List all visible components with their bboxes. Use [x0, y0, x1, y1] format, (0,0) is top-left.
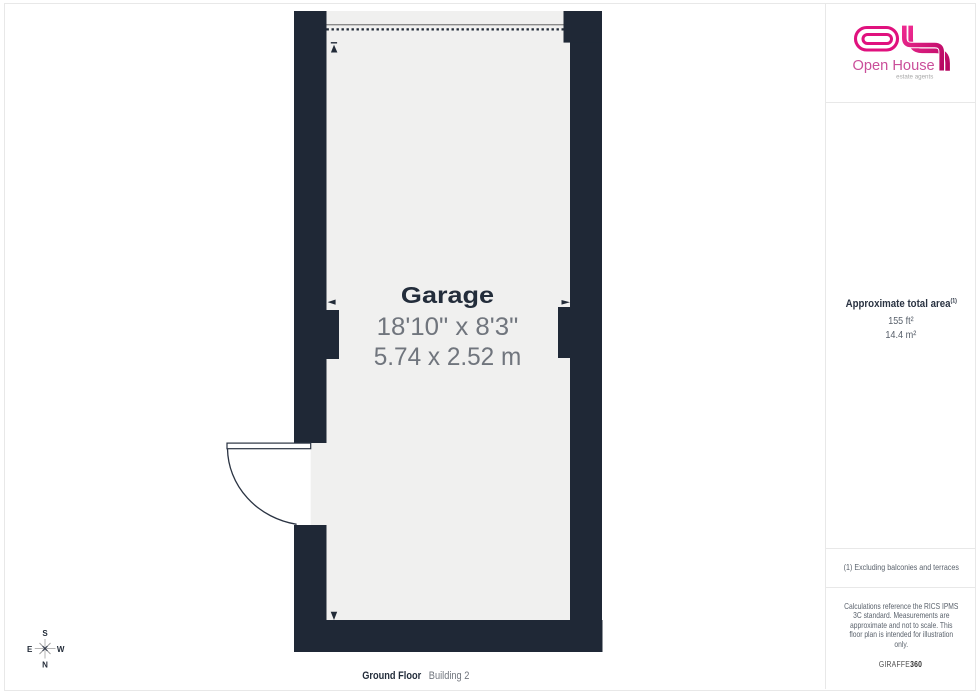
- svg-text:estate agents: estate agents: [896, 74, 933, 81]
- svg-text:Open House: Open House: [853, 58, 935, 74]
- svg-text:S: S: [42, 629, 48, 638]
- svg-text:N: N: [42, 660, 48, 669]
- svg-text:W: W: [57, 645, 65, 654]
- svg-text:E: E: [27, 645, 33, 654]
